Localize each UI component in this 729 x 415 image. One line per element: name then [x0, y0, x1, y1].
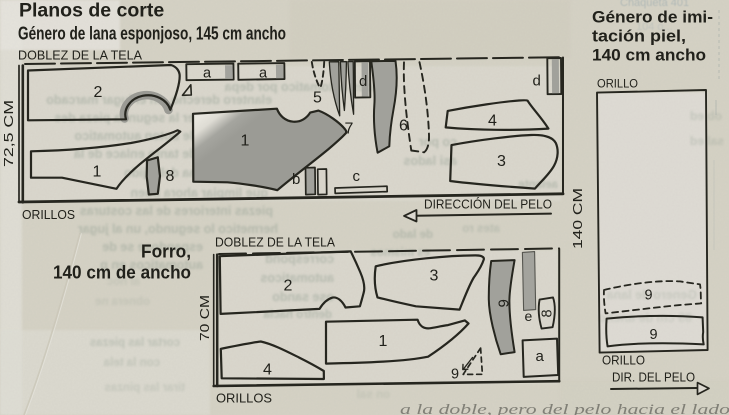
- svg-text:es mismos: es mismos: [371, 247, 430, 259]
- svg-text:5: 5: [313, 90, 322, 107]
- svg-text:4: 4: [488, 113, 497, 130]
- svg-text:Género de imi-: Género de imi-: [592, 9, 713, 27]
- svg-text:DIR. DEL PELO: DIR. DEL PELO: [612, 371, 695, 385]
- svg-text:2: 2: [284, 278, 293, 295]
- svg-text:9: 9: [645, 288, 653, 304]
- svg-text:con la tela: con la tela: [103, 357, 160, 369]
- svg-text:6: 6: [399, 118, 408, 135]
- svg-text:1: 1: [93, 164, 102, 181]
- svg-text:1: 1: [379, 333, 388, 350]
- svg-text:b: b: [292, 171, 300, 188]
- svg-text:9: 9: [650, 327, 658, 343]
- svg-text:a la doble, pero del pelo haci: a la doble, pero del pelo hacia el lado: [400, 402, 729, 415]
- svg-text:7: 7: [345, 121, 354, 138]
- svg-text:3: 3: [430, 268, 439, 285]
- svg-text:Planos de corte: Planos de corte: [19, 0, 164, 22]
- svg-text:d: d: [533, 73, 541, 90]
- svg-text:ORILLO: ORILLO: [602, 354, 645, 368]
- svg-text:tirar las pinzas: tirar las pinzas: [104, 382, 185, 394]
- svg-text:c: c: [353, 168, 361, 185]
- svg-text:140 CM: 140 CM: [571, 188, 585, 249]
- svg-text:140 cm ancho: 140 cm ancho: [592, 47, 706, 65]
- svg-text:9: 9: [496, 299, 513, 307]
- svg-text:3: 3: [497, 153, 506, 170]
- svg-text:a: a: [259, 66, 268, 82]
- svg-text:piezas interiores de las costu: piezas interiores de las costuras: [80, 204, 273, 218]
- svg-text:Género de lana esponjoso, 145: Género de lana esponjoso, 145 cm ancho: [18, 23, 286, 43]
- svg-text:DIRECCIÓN DEL PELO: DIRECCIÓN DEL PELO: [424, 196, 552, 211]
- svg-text:1: 1: [241, 133, 250, 150]
- svg-text:9: 9: [451, 367, 459, 383]
- svg-text:on sal: on sal: [357, 389, 390, 401]
- svg-text:2: 2: [94, 84, 103, 101]
- svg-text:hermetico lo segundo, un al ju: hermetico lo segundo, un al jugar: [78, 222, 278, 236]
- svg-text:a: a: [536, 348, 545, 365]
- svg-text:automaticos: automaticos: [260, 271, 334, 285]
- svg-text:e: e: [525, 308, 533, 324]
- svg-text:ORILLO: ORILLO: [597, 77, 638, 91]
- svg-text:ORILLOS: ORILLOS: [22, 207, 75, 222]
- svg-text:tación piel,: tación piel,: [592, 28, 686, 46]
- svg-text:DOBLEZ DE LA TELA: DOBLEZ DE LA TELA: [18, 48, 143, 62]
- svg-text:de lado: de lado: [393, 229, 433, 241]
- svg-text:70 CM: 70 CM: [198, 295, 212, 341]
- svg-text:4: 4: [263, 362, 272, 379]
- svg-text:140 cm de ancho: 140 cm de ancho: [53, 263, 191, 283]
- svg-text:ates ro: ates ro: [462, 223, 500, 235]
- svg-text:8: 8: [540, 309, 556, 317]
- svg-text:a: a: [203, 66, 212, 82]
- svg-text:asi lados: asi lados: [403, 154, 457, 168]
- svg-text:Forro,: Forro,: [141, 242, 191, 262]
- svg-text:ORILLOS: ORILLOS: [216, 391, 272, 406]
- svg-text:obnera ne: obnera ne: [95, 296, 150, 308]
- svg-text:DOBLEZ DE LA TELA: DOBLEZ DE LA TELA: [215, 236, 336, 250]
- svg-text:72,5 CM: 72,5 CM: [2, 100, 16, 167]
- svg-text:d: d: [359, 73, 367, 90]
- svg-text:8: 8: [166, 168, 175, 185]
- svg-text:cortar las piezas: cortar las piezas: [90, 337, 180, 349]
